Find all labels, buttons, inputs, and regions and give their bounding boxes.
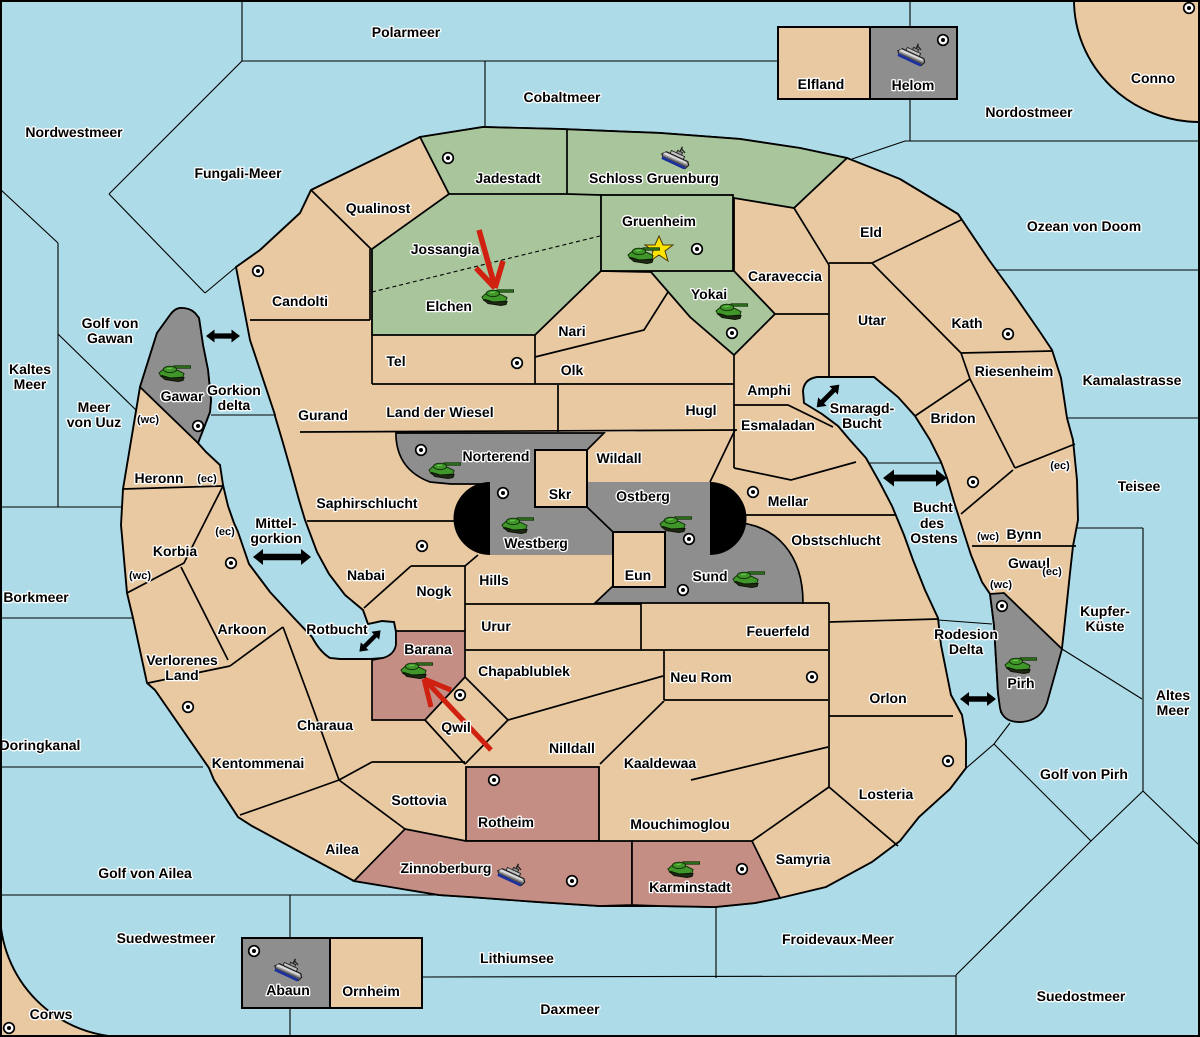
svg-text:Jadestadt: Jadestadt <box>475 170 541 186</box>
svg-text:Rotheim: Rotheim <box>478 814 534 830</box>
svg-text:Eun: Eun <box>625 567 651 583</box>
svg-text:Küste: Küste <box>1086 618 1125 634</box>
svg-text:Bridon: Bridon <box>930 410 975 426</box>
svg-text:Polarmeer: Polarmeer <box>372 24 441 40</box>
svg-text:Kentommenai: Kentommenai <box>212 755 305 771</box>
svg-text:Nari: Nari <box>558 323 585 339</box>
svg-text:Skr: Skr <box>549 486 572 502</box>
svg-text:(ec): (ec) <box>1042 566 1062 578</box>
svg-text:Teisee: Teisee <box>1118 478 1161 494</box>
svg-text:Ostberg: Ostberg <box>616 488 670 504</box>
svg-text:Zinnoberburg: Zinnoberburg <box>401 860 492 876</box>
svg-text:Daxmeer: Daxmeer <box>540 1001 600 1017</box>
svg-text:Schloss Gruenburg: Schloss Gruenburg <box>589 170 719 186</box>
svg-text:Smaragd-: Smaragd- <box>830 400 895 416</box>
svg-text:Altes: Altes <box>1156 687 1190 703</box>
svg-text:Hills: Hills <box>479 572 509 588</box>
svg-text:Obstschlucht: Obstschlucht <box>791 532 881 548</box>
svg-text:Heronn: Heronn <box>135 470 184 486</box>
svg-text:des: des <box>920 515 944 531</box>
svg-text:Verlorenes: Verlorenes <box>146 652 218 668</box>
svg-text:Doringkanal: Doringkanal <box>0 737 80 753</box>
svg-text:Ostens: Ostens <box>910 530 958 546</box>
svg-text:Qwil: Qwil <box>441 719 471 735</box>
svg-text:Jossangia: Jossangia <box>411 241 480 257</box>
svg-text:Suedwestmeer: Suedwestmeer <box>117 930 216 946</box>
svg-text:Rodesion: Rodesion <box>934 626 998 642</box>
svg-text:Gawar: Gawar <box>161 388 204 404</box>
svg-text:Kaltes: Kaltes <box>9 361 51 377</box>
svg-text:Gruenheim: Gruenheim <box>622 213 696 229</box>
svg-text:Abaun: Abaun <box>266 982 310 998</box>
svg-text:Meer: Meer <box>78 399 111 415</box>
svg-text:Feuerfeld: Feuerfeld <box>746 623 809 639</box>
svg-text:Meer: Meer <box>14 376 47 392</box>
svg-text:Nordostmeer: Nordostmeer <box>985 104 1073 120</box>
svg-text:Barana: Barana <box>404 641 452 657</box>
svg-text:Borkmeer: Borkmeer <box>3 589 69 605</box>
svg-text:Delta: Delta <box>949 641 983 657</box>
svg-text:Norterend: Norterend <box>463 448 530 464</box>
svg-text:Golf von Ailea: Golf von Ailea <box>98 865 192 881</box>
svg-text:Elchen: Elchen <box>426 298 472 314</box>
svg-text:Esmaladan: Esmaladan <box>741 417 815 433</box>
svg-text:Kath: Kath <box>951 315 982 331</box>
svg-text:Kaaldewaa: Kaaldewaa <box>624 755 697 771</box>
svg-text:Arkoon: Arkoon <box>218 621 267 637</box>
svg-text:Samyria: Samyria <box>776 851 831 867</box>
svg-text:Qualinost: Qualinost <box>346 200 411 216</box>
svg-text:Kamalastrasse: Kamalastrasse <box>1083 372 1182 388</box>
svg-text:Riesenheim: Riesenheim <box>975 363 1054 379</box>
svg-text:(wc): (wc) <box>990 579 1012 591</box>
svg-text:Ornheim: Ornheim <box>342 983 400 999</box>
svg-text:Mittel-: Mittel- <box>255 515 297 531</box>
svg-text:Mouchimoglou: Mouchimoglou <box>630 816 730 832</box>
svg-text:Suedostmeer: Suedostmeer <box>1037 988 1126 1004</box>
svg-text:Charaua: Charaua <box>297 717 353 733</box>
svg-text:Neu Rom: Neu Rom <box>670 669 731 685</box>
svg-text:Fungali-Meer: Fungali-Meer <box>194 165 282 181</box>
svg-text:gorkion: gorkion <box>250 530 301 546</box>
svg-text:Urur: Urur <box>481 618 511 634</box>
svg-text:delta: delta <box>218 397 251 413</box>
svg-text:Saphirschlucht: Saphirschlucht <box>316 495 417 511</box>
svg-text:Kupfer-: Kupfer- <box>1080 603 1130 619</box>
svg-text:Golf von: Golf von <box>82 315 139 331</box>
svg-text:Froidevaux-Meer: Froidevaux-Meer <box>782 931 895 947</box>
svg-text:(ec): (ec) <box>197 473 217 485</box>
svg-text:Eld: Eld <box>860 224 882 240</box>
svg-text:Tel: Tel <box>386 353 405 369</box>
svg-text:Hugl: Hugl <box>685 402 716 418</box>
svg-text:Westberg: Westberg <box>504 535 568 551</box>
svg-text:Land der Wiesel: Land der Wiesel <box>386 404 493 420</box>
svg-text:Corws: Corws <box>30 1006 73 1022</box>
svg-text:Gawan: Gawan <box>87 330 133 346</box>
svg-text:Conno: Conno <box>1131 70 1175 86</box>
svg-text:Gurand: Gurand <box>298 407 348 423</box>
svg-text:Nogk: Nogk <box>417 583 452 599</box>
svg-text:Nordwestmeer: Nordwestmeer <box>25 124 123 140</box>
svg-text:Helom: Helom <box>892 77 935 93</box>
svg-text:Mellar: Mellar <box>768 493 809 509</box>
svg-text:(wc): (wc) <box>977 531 999 543</box>
svg-text:Chapablublek: Chapablublek <box>478 663 570 679</box>
svg-text:Bynn: Bynn <box>1007 526 1042 542</box>
svg-text:Cobaltmeer: Cobaltmeer <box>523 89 601 105</box>
svg-text:Ailea: Ailea <box>325 841 359 857</box>
svg-text:Sund: Sund <box>693 568 728 584</box>
svg-text:Bucht: Bucht <box>842 415 882 431</box>
svg-text:Candolti: Candolti <box>272 293 328 309</box>
svg-text:Gorkion: Gorkion <box>207 382 261 398</box>
svg-text:von Uuz: von Uuz <box>67 414 121 430</box>
svg-text:Sottovia: Sottovia <box>391 792 446 808</box>
svg-text:Korbia: Korbia <box>153 543 198 559</box>
svg-text:Losteria: Losteria <box>859 786 914 802</box>
svg-text:Caraveccia: Caraveccia <box>748 268 822 284</box>
svg-text:Land: Land <box>165 667 198 683</box>
svg-text:Ozean von Doom: Ozean von Doom <box>1027 218 1141 234</box>
svg-text:Wildall: Wildall <box>597 450 642 466</box>
svg-text:Yokai: Yokai <box>691 286 727 302</box>
svg-text:Bucht: Bucht <box>913 499 953 515</box>
svg-text:Olk: Olk <box>561 362 584 378</box>
svg-text:Amphi: Amphi <box>747 382 791 398</box>
svg-text:Nilldall: Nilldall <box>549 740 595 756</box>
svg-text:Orlon: Orlon <box>869 690 906 706</box>
svg-text:Lithiumsee: Lithiumsee <box>480 950 554 966</box>
svg-text:Utar: Utar <box>858 312 887 328</box>
svg-text:(wc): (wc) <box>129 570 151 582</box>
svg-text:(ec): (ec) <box>215 526 235 538</box>
svg-text:Elfland: Elfland <box>798 76 845 92</box>
svg-text:Golf von Pirh: Golf von Pirh <box>1040 766 1128 782</box>
svg-text:Meer: Meer <box>1157 702 1190 718</box>
svg-text:(ec): (ec) <box>1050 460 1070 472</box>
svg-text:Pirh: Pirh <box>1007 675 1034 691</box>
svg-text:Karminstadt: Karminstadt <box>649 879 731 895</box>
svg-text:Rotbucht: Rotbucht <box>306 621 368 637</box>
svg-text:(wc): (wc) <box>137 414 159 426</box>
svg-text:Nabai: Nabai <box>347 567 385 583</box>
